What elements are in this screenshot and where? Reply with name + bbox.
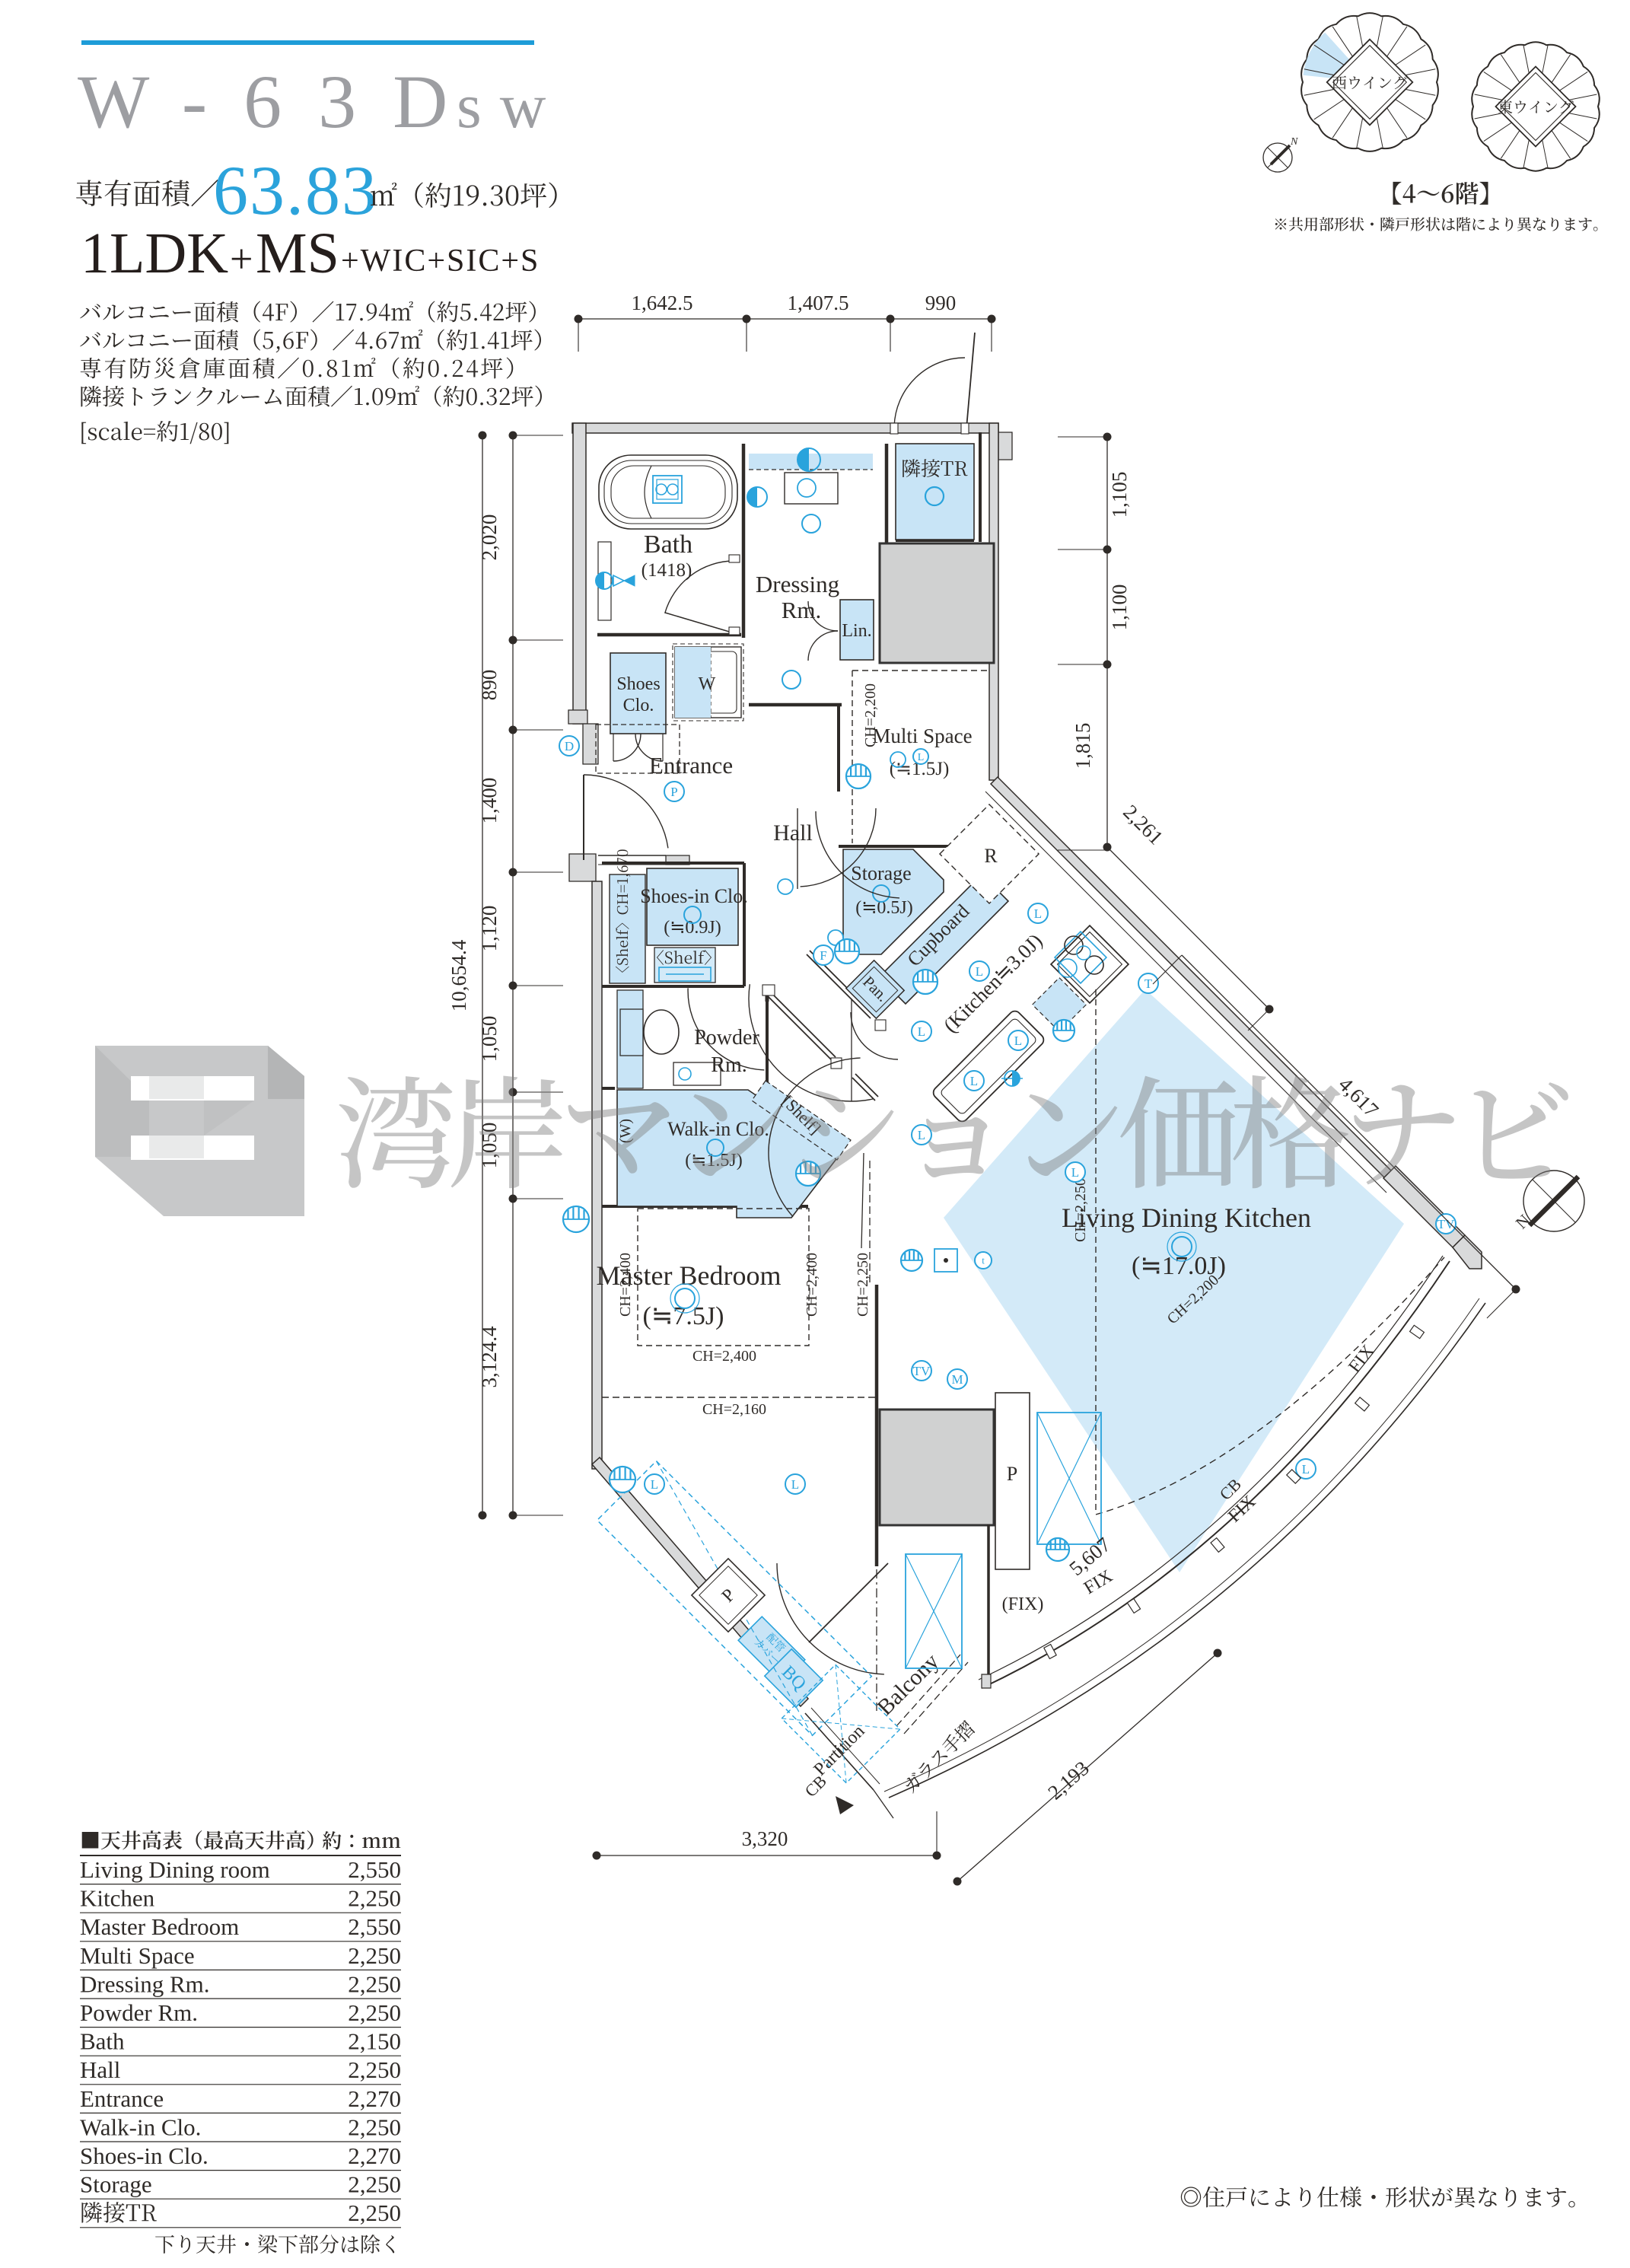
svg-text:10,654.4: 10,654.4 <box>447 939 470 1011</box>
svg-text:2,550: 2,550 <box>348 1913 401 1940</box>
svg-text:CH=2,250: CH=2,250 <box>855 1253 871 1317</box>
svg-text:MS: MS <box>256 221 339 285</box>
svg-text:2,550: 2,550 <box>348 1856 401 1883</box>
svg-text:Storage: Storage <box>80 2171 152 2198</box>
svg-text:Rm.: Rm. <box>711 1053 747 1077</box>
svg-text:L: L <box>918 752 925 763</box>
svg-text:Master Bedroom: Master Bedroom <box>80 1913 239 1940</box>
svg-text:1,050: 1,050 <box>478 1016 501 1062</box>
svg-text:990: 990 <box>925 291 957 314</box>
svg-text:Clo.: Clo. <box>623 696 654 715</box>
svg-text:t: t <box>982 1255 985 1266</box>
svg-text:2,250: 2,250 <box>348 1942 401 1969</box>
svg-text:Entrance: Entrance <box>649 752 733 779</box>
svg-text:L: L <box>791 1477 799 1492</box>
svg-text:(1418): (1418) <box>641 560 692 581</box>
svg-text:63.83: 63.83 <box>213 151 378 229</box>
svg-text:Dressing: Dressing <box>756 571 839 597</box>
svg-text:1,642.5: 1,642.5 <box>632 291 693 314</box>
svg-text:sw: sw <box>457 71 564 142</box>
svg-text:P: P <box>670 785 677 799</box>
svg-text:Dressing Rm.: Dressing Rm. <box>80 1970 210 1997</box>
svg-text:L: L <box>1071 1165 1079 1180</box>
svg-text:Powder: Powder <box>694 1026 759 1050</box>
svg-text:(FIX): (FIX) <box>1002 1594 1044 1614</box>
svg-text:2,250: 2,250 <box>348 2200 401 2226</box>
svg-text:Shoes-in Clo.: Shoes-in Clo. <box>640 885 748 907</box>
svg-text:Living Dining Kitchen: Living Dining Kitchen <box>1062 1202 1311 1233</box>
svg-text:CH=2,160: CH=2,160 <box>702 1401 766 1418</box>
svg-text:L: L <box>918 1128 925 1142</box>
svg-text:Lin.: Lin. <box>842 621 871 641</box>
svg-text:1,400: 1,400 <box>478 778 501 824</box>
svg-text:L: L <box>1034 906 1042 921</box>
svg-text:Shoes-in Clo.: Shoes-in Clo. <box>80 2142 209 2169</box>
svg-text:Multi Space: Multi Space <box>872 725 972 747</box>
svg-text:2,250: 2,250 <box>348 1885 401 1912</box>
svg-text:1,407.5: 1,407.5 <box>788 291 849 314</box>
svg-text:P: P <box>1007 1463 1017 1485</box>
svg-text:1LDK: 1LDK <box>81 221 228 285</box>
svg-text:Living Dining room: Living Dining room <box>80 1856 270 1883</box>
svg-text:Shoes: Shoes <box>616 674 660 694</box>
svg-text:CH=2,250: CH=2,250 <box>1072 1178 1089 1242</box>
svg-text:Powder Rm.: Powder Rm. <box>80 1999 198 2026</box>
svg-text:CH=2,400: CH=2,400 <box>617 1253 634 1317</box>
svg-text:1,105: 1,105 <box>1108 472 1131 518</box>
svg-text:2,250: 2,250 <box>348 1970 401 1997</box>
svg-text:CH=2,200: CH=2,200 <box>862 683 879 747</box>
svg-text:L: L <box>918 1024 925 1039</box>
svg-text:2,270: 2,270 <box>348 2142 401 2169</box>
svg-text:3,124.4: 3,124.4 <box>478 1326 501 1388</box>
svg-text:(≒7.5J): (≒7.5J) <box>643 1302 724 1330</box>
svg-text:Walk-in Clo.: Walk-in Clo. <box>80 2114 201 2140</box>
svg-text:TV: TV <box>913 1364 931 1378</box>
svg-text:1,815: 1,815 <box>1071 723 1094 769</box>
svg-text:+WIC+SIC+S: +WIC+SIC+S <box>341 244 540 279</box>
svg-text:D: D <box>565 739 574 753</box>
svg-text:Bath: Bath <box>644 530 692 559</box>
svg-text:890: 890 <box>478 670 501 701</box>
svg-text:F: F <box>820 948 826 963</box>
svg-text:M: M <box>951 1372 963 1387</box>
svg-text:T: T <box>1145 976 1153 991</box>
svg-text:Bath: Bath <box>80 2028 125 2055</box>
svg-text:L: L <box>1014 1034 1022 1048</box>
svg-text:1,050: 1,050 <box>478 1123 501 1169</box>
svg-text:(≒0.9J): (≒0.9J) <box>664 918 721 938</box>
svg-text:Storage: Storage <box>851 862 911 884</box>
svg-text:2,150: 2,150 <box>348 2028 401 2055</box>
svg-text:2,270: 2,270 <box>348 2085 401 2112</box>
svg-text:2,250: 2,250 <box>348 2056 401 2083</box>
svg-text:Hall: Hall <box>80 2056 120 2083</box>
svg-text:3,320: 3,320 <box>742 1827 788 1850</box>
svg-text:W: W <box>699 674 716 694</box>
svg-text:W-63D: W-63D <box>78 59 484 144</box>
svg-text:L: L <box>651 1477 658 1492</box>
svg-text:Hall: Hall <box>773 820 813 846</box>
svg-text:N: N <box>1290 136 1298 148</box>
svg-text:Kitchen: Kitchen <box>80 1885 155 1912</box>
svg-text:Rm.: Rm. <box>782 597 822 623</box>
svg-text:1,100: 1,100 <box>1108 585 1131 631</box>
svg-text:2,250: 2,250 <box>348 1999 401 2026</box>
svg-text:L: L <box>976 964 983 979</box>
svg-text:L: L <box>970 1074 978 1088</box>
svg-text:Multi Space: Multi Space <box>80 1942 195 1969</box>
svg-text:2,250: 2,250 <box>348 2171 401 2198</box>
svg-text:1,120: 1,120 <box>478 906 501 952</box>
svg-text:Entrance: Entrance <box>80 2085 164 2112</box>
svg-text:CH=2,400: CH=2,400 <box>692 1348 756 1365</box>
svg-text:L: L <box>1302 1462 1310 1476</box>
svg-text:2,250: 2,250 <box>348 2114 401 2140</box>
svg-text:+: + <box>230 236 253 282</box>
svg-text:2,020: 2,020 <box>478 514 501 561</box>
svg-text:R: R <box>984 845 998 867</box>
svg-text:CH=2,400: CH=2,400 <box>804 1253 820 1317</box>
